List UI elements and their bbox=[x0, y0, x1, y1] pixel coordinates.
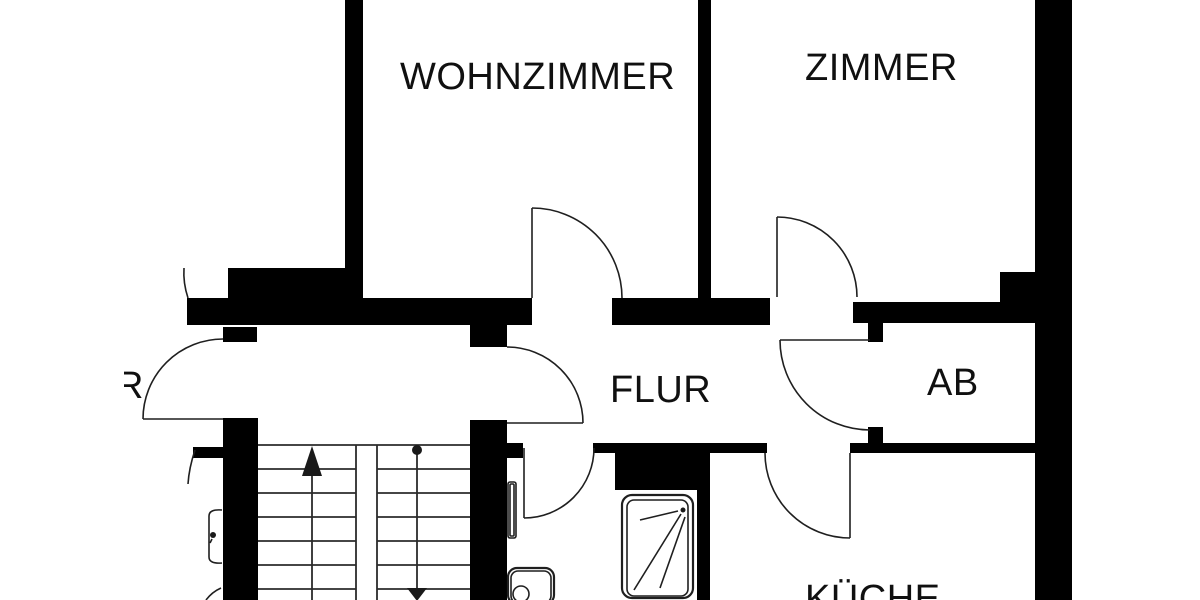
wall-mid-band-center bbox=[593, 443, 767, 453]
wall-flur-top-left bbox=[187, 298, 532, 325]
wall-stair-left bbox=[223, 418, 258, 600]
wall-bath-kueche-divider bbox=[697, 453, 710, 600]
room-label-kueche: KÜCHE bbox=[805, 578, 941, 600]
room-label-fragment-r: R bbox=[116, 365, 144, 407]
shower-tray-inner bbox=[627, 500, 688, 596]
door-corridor-flur-swing-arc bbox=[507, 347, 583, 423]
room-label-flur: FLUR bbox=[610, 369, 711, 411]
stair-start-dot bbox=[412, 445, 422, 455]
room-label-zimmer: ZIMMER bbox=[805, 47, 958, 89]
wall-ab-top bbox=[853, 302, 1037, 323]
toilet-outer bbox=[508, 568, 554, 600]
room-label-ab: AB bbox=[927, 362, 979, 404]
door-ab-swing-arc bbox=[780, 340, 870, 430]
wall-ne-chunk bbox=[1000, 272, 1037, 302]
floorplan-canvas: WOHNZIMMERZIMMERFLURABKÜCHER bbox=[0, 0, 1200, 600]
radiator-inner bbox=[510, 484, 514, 536]
wall-mid-band-left-stub bbox=[505, 443, 523, 458]
wall-stair-right bbox=[470, 420, 507, 600]
door-kueche-swing-arc bbox=[765, 453, 850, 538]
floorplan: WOHNZIMMERZIMMERFLURABKÜCHER bbox=[0, 0, 1200, 600]
stair-arrow-down bbox=[407, 588, 427, 600]
door-wohnzimmer-swing-arc bbox=[532, 208, 622, 298]
door-bathroom-swing-arc bbox=[524, 448, 594, 518]
shower-spray-line bbox=[640, 511, 678, 520]
wall-right-outer bbox=[1035, 0, 1072, 600]
wall-left-stub bbox=[193, 447, 223, 458]
wall-upper-band-left bbox=[228, 268, 363, 298]
wall-flur-top-mid bbox=[612, 298, 770, 325]
arc-fragment-left bbox=[188, 450, 195, 484]
bracket-detail-dot bbox=[210, 532, 216, 538]
wall-shaft-above-shower bbox=[615, 453, 697, 490]
shower-spray-line bbox=[634, 514, 681, 590]
arc-fragment-top-left bbox=[184, 268, 188, 298]
wall-ab-door-stub-top bbox=[868, 323, 883, 342]
wall-stair-right-stub-top bbox=[470, 325, 507, 347]
room-label-wohnzimmer: WOHNZIMMER bbox=[400, 56, 675, 98]
wall-entrance-stub bbox=[223, 327, 257, 342]
door-zimmer-swing-arc bbox=[777, 217, 857, 297]
toilet-bowl bbox=[513, 586, 529, 600]
stair-arrow-up bbox=[302, 446, 322, 476]
wall-mid-band-right bbox=[850, 443, 1037, 453]
shower-drain-dot bbox=[681, 508, 686, 513]
bracket-detail-tail bbox=[210, 539, 212, 543]
door-entrance-swing-arc bbox=[143, 339, 223, 419]
toilet-inner bbox=[511, 571, 551, 600]
wall-ab-door-stub-bottom bbox=[868, 427, 883, 443]
wall-wohnzimmer-zimmer-divider bbox=[698, 0, 711, 300]
wall-wohnzimmer-left bbox=[345, 0, 363, 300]
arc-fragment-bottom-left bbox=[206, 588, 221, 600]
